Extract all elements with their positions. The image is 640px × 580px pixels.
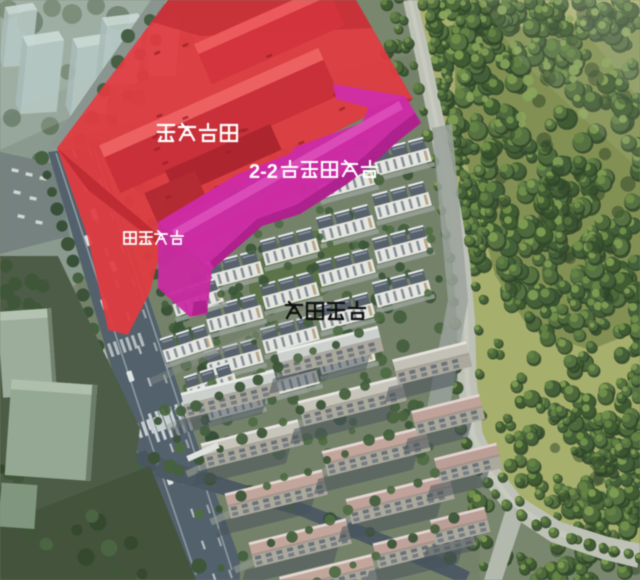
svg-text:2-2: 2-2 (249, 161, 278, 183)
